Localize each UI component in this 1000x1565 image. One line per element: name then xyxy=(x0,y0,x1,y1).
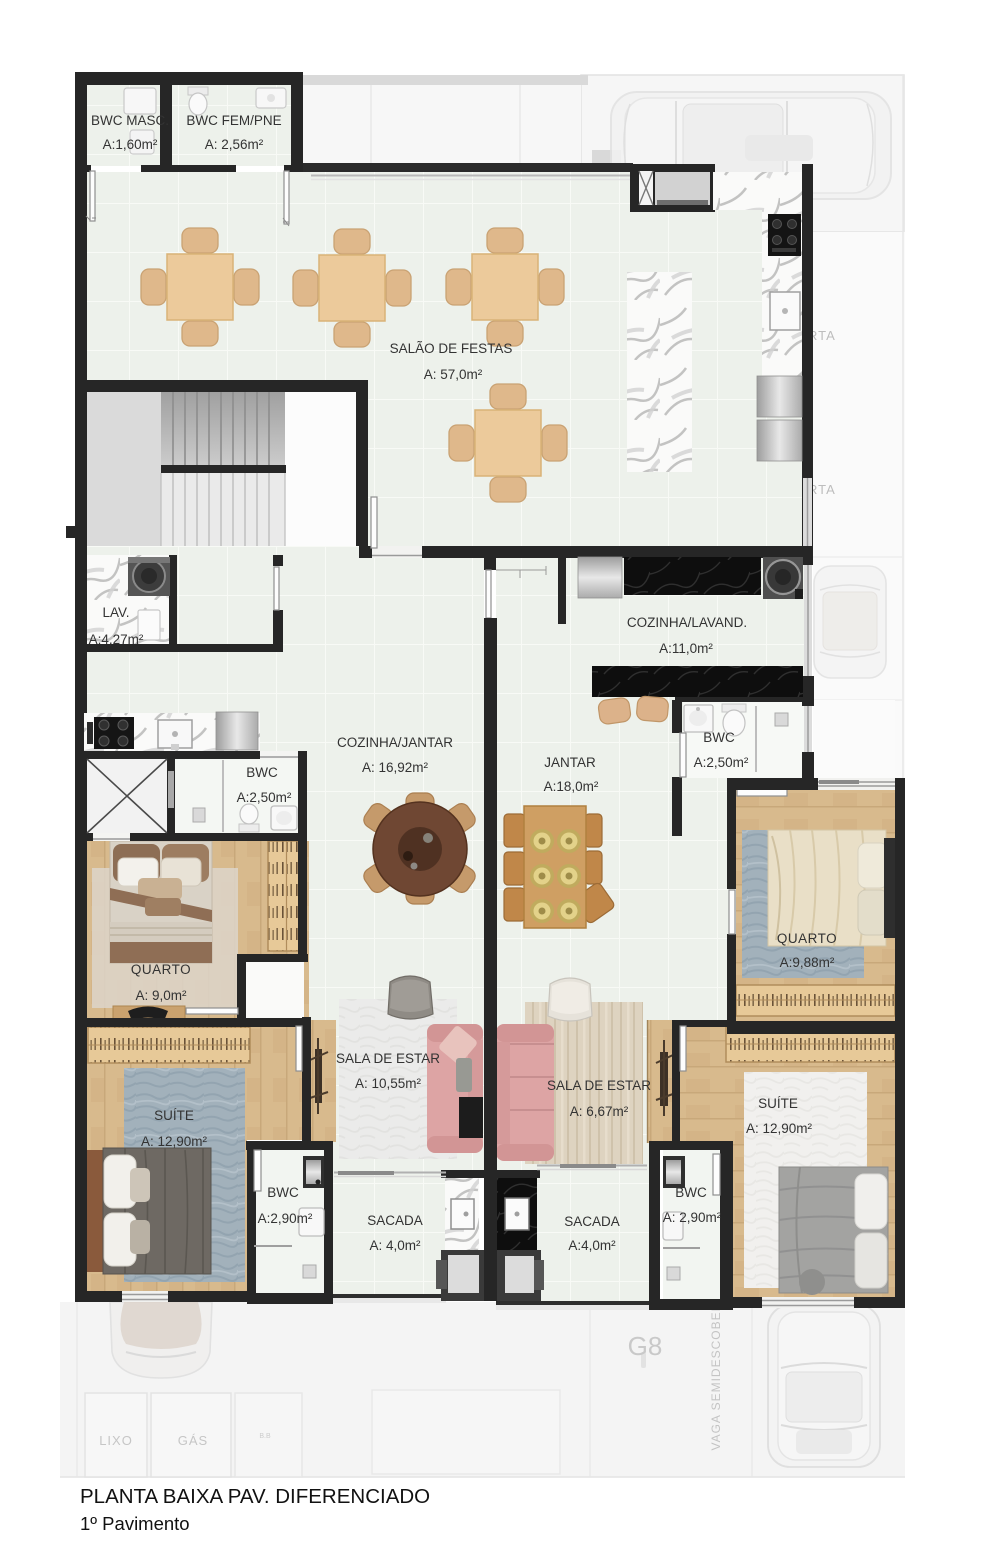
svg-text:A:9,88m²: A:9,88m² xyxy=(780,955,835,970)
svg-text:GÁS: GÁS xyxy=(178,1433,208,1448)
svg-text:A:2,90m²: A:2,90m² xyxy=(258,1211,313,1226)
svg-text:A:18,0m²: A:18,0m² xyxy=(544,779,599,794)
svg-text:B.B: B.B xyxy=(259,1433,271,1440)
svg-text:BWC: BWC xyxy=(703,730,735,745)
svg-text:A: 4,0m²: A: 4,0m² xyxy=(369,1238,421,1253)
svg-text:SACADA: SACADA xyxy=(367,1213,423,1228)
svg-text:SALÃO DE FESTAS: SALÃO DE FESTAS xyxy=(390,341,513,356)
svg-text:A: 57,0m²: A: 57,0m² xyxy=(424,367,483,382)
svg-text:A:4,0m²: A:4,0m² xyxy=(568,1238,616,1253)
svg-text:SUÍTE: SUÍTE xyxy=(154,1108,194,1123)
svg-text:COZINHA/LAVAND.: COZINHA/LAVAND. xyxy=(627,615,747,630)
svg-text:JANTAR: JANTAR xyxy=(544,755,596,770)
svg-text:A:1,60m²: A:1,60m² xyxy=(103,137,158,152)
svg-text:BWC MASC.: BWC MASC. xyxy=(91,113,169,128)
svg-text:LAV.: LAV. xyxy=(102,605,129,620)
svg-text:BWC: BWC xyxy=(267,1185,299,1200)
svg-text:A: 9,0m²: A: 9,0m² xyxy=(135,988,187,1003)
svg-text:VAGA SEMIDESCOBERTA: VAGA SEMIDESCOBERTA xyxy=(709,1285,723,1450)
svg-text:BWC: BWC xyxy=(246,765,278,780)
svg-text:SALA DE ESTAR: SALA DE ESTAR xyxy=(336,1051,440,1066)
svg-text:1º Pavimento: 1º Pavimento xyxy=(80,1513,190,1534)
svg-text:BWC: BWC xyxy=(675,1185,707,1200)
svg-text:A: 12,90m²: A: 12,90m² xyxy=(746,1121,813,1136)
svg-text:COZINHA/JANTAR: COZINHA/JANTAR xyxy=(337,735,453,750)
svg-text:SALA DE ESTAR: SALA DE ESTAR xyxy=(547,1078,651,1093)
svg-text:A: 2,56m²: A: 2,56m² xyxy=(205,137,264,152)
svg-text:A: 16,92m²: A: 16,92m² xyxy=(362,760,429,775)
svg-text:A:2,50m²: A:2,50m² xyxy=(237,790,292,805)
svg-text:QUARTO: QUARTO xyxy=(777,931,837,946)
svg-text:LIXO: LIXO xyxy=(99,1433,133,1448)
svg-text:A: 12,90m²: A: 12,90m² xyxy=(141,1134,208,1149)
svg-text:A: 2,90m²: A: 2,90m² xyxy=(663,1210,722,1225)
svg-text:G8: G8 xyxy=(628,1331,663,1361)
svg-text:A: 10,55m²: A: 10,55m² xyxy=(355,1076,422,1091)
svg-text:A:11,0m²: A:11,0m² xyxy=(659,641,713,656)
svg-text:PLANTA BAIXA PAV. DIFERENCIADO: PLANTA BAIXA PAV. DIFERENCIADO xyxy=(80,1485,430,1508)
svg-text:A:2,50m²: A:2,50m² xyxy=(694,755,749,770)
svg-text:SACADA: SACADA xyxy=(564,1214,620,1229)
svg-text:SUÍTE: SUÍTE xyxy=(758,1096,798,1111)
svg-text:BWC FEM/PNE: BWC FEM/PNE xyxy=(186,113,281,128)
svg-text:A: 6,67m²: A: 6,67m² xyxy=(570,1104,629,1119)
svg-text:A:4,27m²: A:4,27m² xyxy=(89,632,144,647)
svg-text:QUARTO: QUARTO xyxy=(131,962,191,977)
